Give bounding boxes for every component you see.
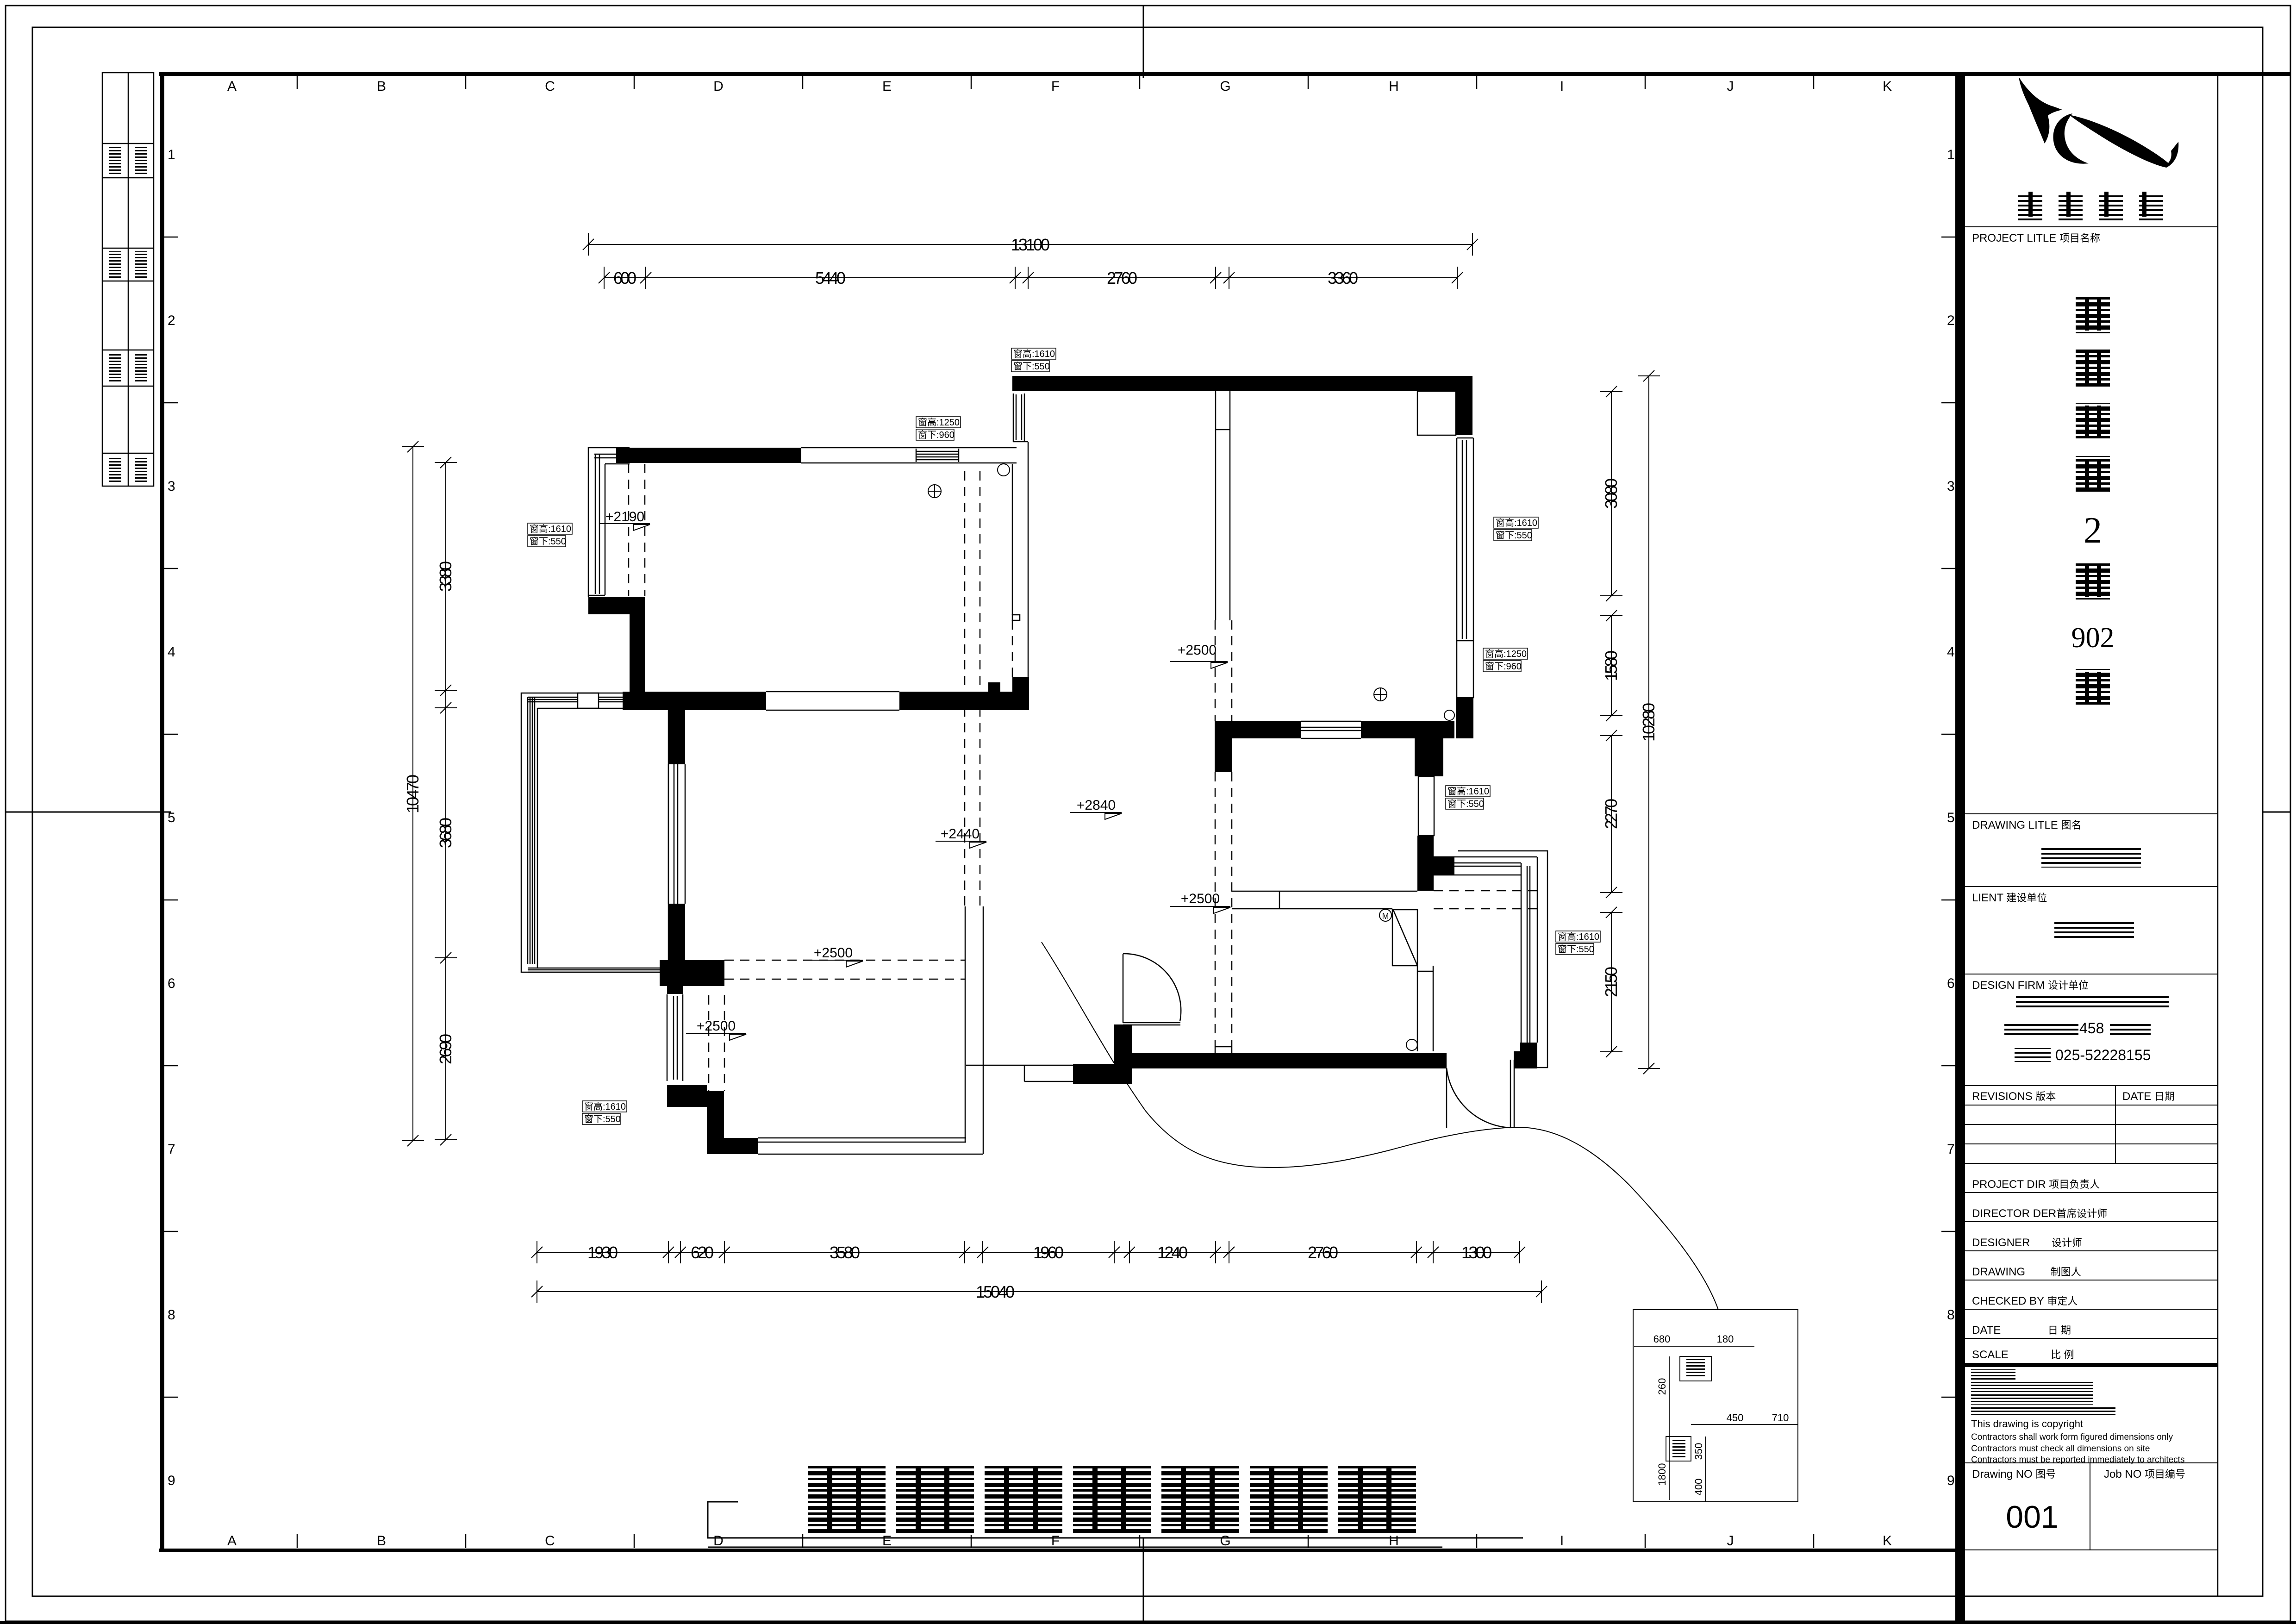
svg-text:8: 8 — [1947, 1307, 1955, 1323]
svg-text:7: 7 — [168, 1142, 175, 1157]
svg-text:+2500: +2500 — [1178, 643, 1217, 658]
svg-text:窗高:1610: 窗高:1610 — [1013, 349, 1055, 359]
svg-text:2270: 2270 — [1602, 799, 1621, 829]
svg-text:C: C — [545, 79, 555, 94]
svg-text:A: A — [227, 79, 237, 94]
svg-text:Job NO 项目编号: Job NO 项目编号 — [2104, 1468, 2185, 1480]
svg-text:窗高:1250: 窗高:1250 — [918, 417, 960, 428]
svg-text:J: J — [1727, 79, 1734, 94]
svg-text:10470: 10470 — [403, 775, 422, 813]
svg-text:I: I — [1560, 1533, 1564, 1549]
svg-text:B: B — [377, 1533, 386, 1549]
svg-text:6: 6 — [168, 976, 175, 991]
svg-text:D: D — [713, 1533, 724, 1549]
svg-text:H: H — [1389, 79, 1399, 94]
svg-text:13100: 13100 — [1011, 235, 1050, 254]
svg-text:Contractors must check all dim: Contractors must check all dimensions on… — [1971, 1444, 2150, 1454]
svg-text:+2440: +2440 — [941, 826, 980, 842]
svg-text:3080: 3080 — [1602, 478, 1621, 509]
svg-text:3: 3 — [1947, 479, 1955, 494]
svg-text:PROJECT LITLE 项目名称: PROJECT LITLE 项目名称 — [1972, 232, 2100, 244]
svg-text:180: 180 — [1717, 1333, 1734, 1345]
svg-text:3380: 3380 — [436, 561, 455, 592]
svg-text:B: B — [377, 79, 386, 94]
svg-text:5: 5 — [1947, 810, 1955, 825]
svg-text:400: 400 — [1693, 1479, 1704, 1496]
svg-text:10280: 10280 — [1639, 703, 1658, 742]
svg-text:A: A — [227, 1533, 237, 1549]
svg-text:2760: 2760 — [1308, 1243, 1338, 1262]
svg-text:DRAWING 制图人: DRAWING 制图人 — [1972, 1266, 2081, 1278]
svg-text:2: 2 — [2084, 510, 2102, 551]
svg-text:H: H — [1389, 1533, 1399, 1549]
svg-text:+2500: +2500 — [814, 945, 853, 961]
svg-text:窗下:550: 窗下:550 — [1558, 944, 1594, 955]
svg-text:F: F — [1051, 1533, 1060, 1549]
svg-text:窗下:550: 窗下:550 — [1496, 530, 1532, 541]
svg-text:窗下:960: 窗下:960 — [918, 430, 955, 440]
svg-text:窗下:550: 窗下:550 — [1013, 361, 1050, 372]
svg-text:+2190: +2190 — [605, 509, 644, 525]
svg-text:Contractors must be reported i: Contractors must be reported immediately… — [1971, 1455, 2184, 1465]
svg-text:DATE 日期: DATE 日期 — [2122, 1090, 2175, 1103]
svg-text:Drawing NO 图号: Drawing NO 图号 — [1972, 1468, 2056, 1480]
svg-text:G: G — [1220, 79, 1230, 94]
svg-text:680: 680 — [1653, 1333, 1671, 1345]
svg-text:4: 4 — [168, 644, 175, 660]
svg-text:+2500: +2500 — [1181, 891, 1220, 906]
svg-text:902: 902 — [2071, 622, 2115, 654]
svg-text:450: 450 — [1727, 1412, 1744, 1424]
svg-text:I: I — [1560, 79, 1564, 94]
svg-text:8: 8 — [168, 1307, 175, 1323]
svg-text:K: K — [1883, 79, 1892, 94]
svg-text:2150: 2150 — [1602, 967, 1621, 997]
svg-text:CHECKED BY 审定人: CHECKED BY 审定人 — [1972, 1295, 2078, 1307]
svg-text:1: 1 — [1947, 147, 1955, 162]
svg-text:1240: 1240 — [1157, 1243, 1188, 1262]
svg-text:710: 710 — [1772, 1412, 1789, 1424]
svg-text:260: 260 — [1656, 1378, 1668, 1395]
svg-text:4: 4 — [1947, 644, 1955, 660]
svg-text:025-52228155: 025-52228155 — [2055, 1047, 2151, 1063]
svg-text:J: J — [1727, 1533, 1734, 1549]
svg-text:3680: 3680 — [436, 818, 455, 848]
svg-text:+2500: +2500 — [697, 1018, 736, 1034]
svg-text:窗高:1610: 窗高:1610 — [1447, 786, 1489, 797]
svg-text:1930: 1930 — [587, 1243, 618, 1262]
svg-text:K: K — [1883, 1533, 1892, 1549]
svg-text:窗下:550: 窗下:550 — [584, 1114, 621, 1124]
svg-text:窗下:960: 窗下:960 — [1485, 661, 1522, 672]
svg-text:3360: 3360 — [1328, 269, 1358, 287]
svg-text:620: 620 — [691, 1243, 714, 1262]
svg-text:窗高:1610: 窗高:1610 — [1558, 931, 1599, 942]
svg-text:9: 9 — [1947, 1473, 1955, 1488]
svg-text:F: F — [1051, 79, 1060, 94]
svg-text:1580: 1580 — [1602, 650, 1621, 681]
svg-text:窗下:550: 窗下:550 — [530, 536, 566, 547]
svg-text:窗高:1610: 窗高:1610 — [530, 524, 571, 534]
svg-text:9: 9 — [168, 1473, 175, 1488]
svg-text:窗高:1610: 窗高:1610 — [584, 1101, 626, 1112]
svg-text:+2840: +2840 — [1077, 798, 1116, 813]
svg-text:2760: 2760 — [1107, 269, 1137, 287]
svg-text:350: 350 — [1693, 1443, 1704, 1460]
svg-text:REVISIONS 版本: REVISIONS 版本 — [1972, 1090, 2056, 1103]
svg-text:Contractors shall work form fi: Contractors shall work form figured dime… — [1971, 1432, 2173, 1442]
svg-text:600: 600 — [613, 269, 636, 287]
svg-text:This drawing is copyright: This drawing is copyright — [1971, 1418, 2083, 1430]
svg-text:PROJECT DIR 项目负责人: PROJECT DIR 项目负责人 — [1972, 1178, 2100, 1191]
svg-text:2690: 2690 — [436, 1034, 455, 1064]
svg-text:窗下:550: 窗下:550 — [1447, 799, 1484, 809]
svg-text:E: E — [882, 1533, 892, 1549]
svg-text:窗高:1610: 窗高:1610 — [1496, 518, 1537, 528]
svg-text:窗高:1250: 窗高:1250 — [1485, 649, 1527, 659]
svg-text:DRAWING LITLE 图名: DRAWING LITLE 图名 — [1972, 819, 2081, 831]
svg-text:15040: 15040 — [976, 1282, 1015, 1301]
svg-text:2: 2 — [168, 313, 175, 328]
svg-text:5440: 5440 — [815, 269, 846, 287]
svg-text:M: M — [1382, 912, 1389, 921]
svg-text:2: 2 — [1947, 313, 1955, 328]
svg-text:DESIGNER 设计师: DESIGNER 设计师 — [1972, 1237, 2082, 1249]
svg-text:SCALE 比 例: SCALE 比 例 — [1972, 1349, 2074, 1361]
svg-text:7: 7 — [1947, 1142, 1955, 1157]
svg-text:1300: 1300 — [1461, 1243, 1492, 1262]
svg-text:3: 3 — [168, 479, 175, 494]
svg-text:3580: 3580 — [830, 1243, 860, 1262]
svg-text:1960: 1960 — [1033, 1243, 1064, 1262]
svg-text:1: 1 — [168, 147, 175, 162]
svg-text:6: 6 — [1947, 976, 1955, 991]
svg-text:G: G — [1220, 1533, 1230, 1549]
svg-text:458: 458 — [2079, 1020, 2104, 1037]
svg-text:E: E — [882, 79, 892, 94]
svg-text:DATE 日 期: DATE 日 期 — [1972, 1324, 2071, 1337]
svg-text:DESIGN FIRM 设计单位: DESIGN FIRM 设计单位 — [1972, 979, 2089, 992]
svg-text:LIENT 建设单位: LIENT 建设单位 — [1972, 892, 2047, 904]
svg-text:C: C — [545, 1533, 555, 1549]
svg-text:1800: 1800 — [1656, 1463, 1668, 1486]
svg-text:001: 001 — [2006, 1499, 2058, 1535]
svg-text:5: 5 — [168, 810, 175, 825]
svg-text:D: D — [713, 79, 724, 94]
svg-text:DIRECTOR DER首席设计师: DIRECTOR DER首席设计师 — [1972, 1207, 2107, 1220]
